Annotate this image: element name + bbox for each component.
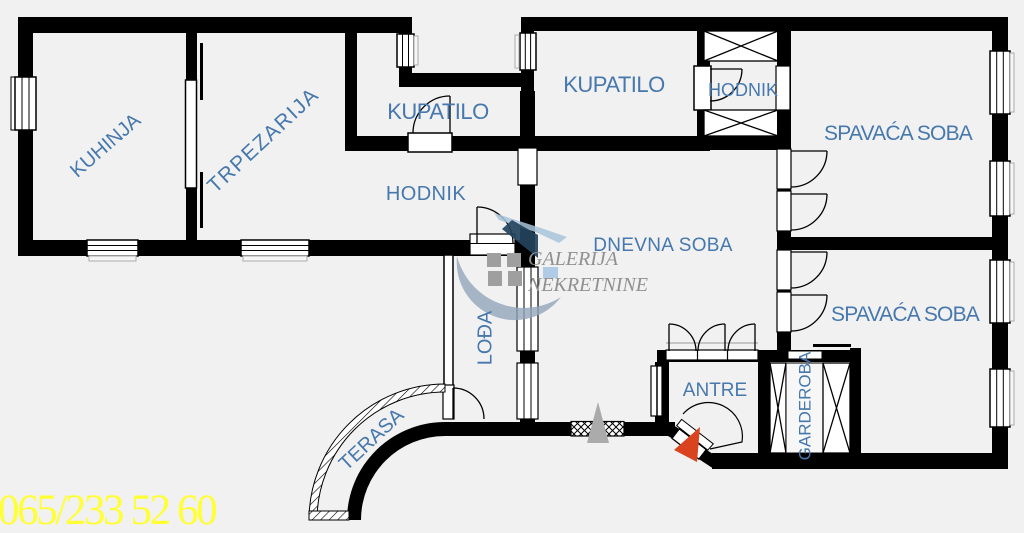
svg-text:HODNIK: HODNIK bbox=[708, 80, 778, 100]
svg-text:065/233 52 60: 065/233 52 60 bbox=[0, 487, 216, 533]
svg-text:SPAVAĆA SOBA: SPAVAĆA SOBA bbox=[831, 303, 980, 326]
svg-text:GARDEROBA: GARDEROBA bbox=[795, 351, 814, 460]
svg-text:NEKRETNINE: NEKRETNINE bbox=[527, 274, 648, 296]
svg-text:LOĐA: LOĐA bbox=[474, 310, 496, 365]
svg-text:KUPATILO: KUPATILO bbox=[563, 72, 665, 97]
svg-text:ANTRE: ANTRE bbox=[683, 380, 747, 401]
svg-text:DNEVNA SOBA: DNEVNA SOBA bbox=[593, 235, 733, 256]
svg-text:KUPATILO: KUPATILO bbox=[387, 99, 489, 124]
svg-text:SPAVAĆA SOBA: SPAVAĆA SOBA bbox=[824, 122, 973, 145]
svg-text:HODNIK: HODNIK bbox=[386, 183, 466, 205]
